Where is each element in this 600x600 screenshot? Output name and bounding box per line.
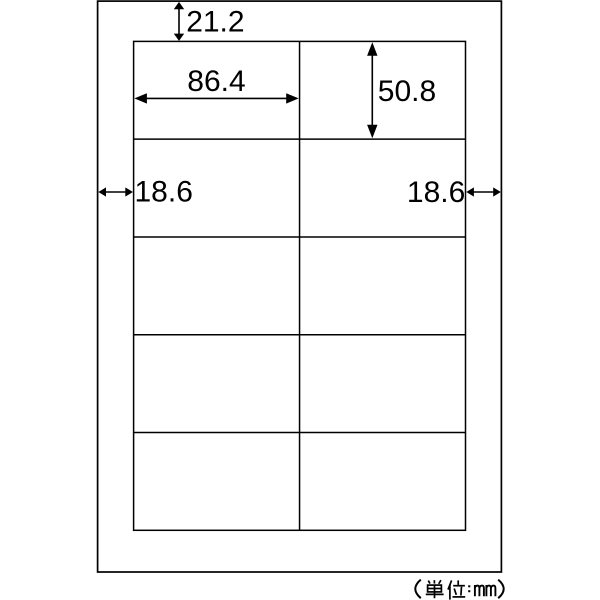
svg-text:18.6: 18.6 <box>407 176 465 209</box>
svg-text:21.2: 21.2 <box>186 5 244 38</box>
svg-text:50.8: 50.8 <box>378 75 436 108</box>
svg-text:18.6: 18.6 <box>135 176 193 209</box>
svg-text:86.4: 86.4 <box>187 65 245 98</box>
